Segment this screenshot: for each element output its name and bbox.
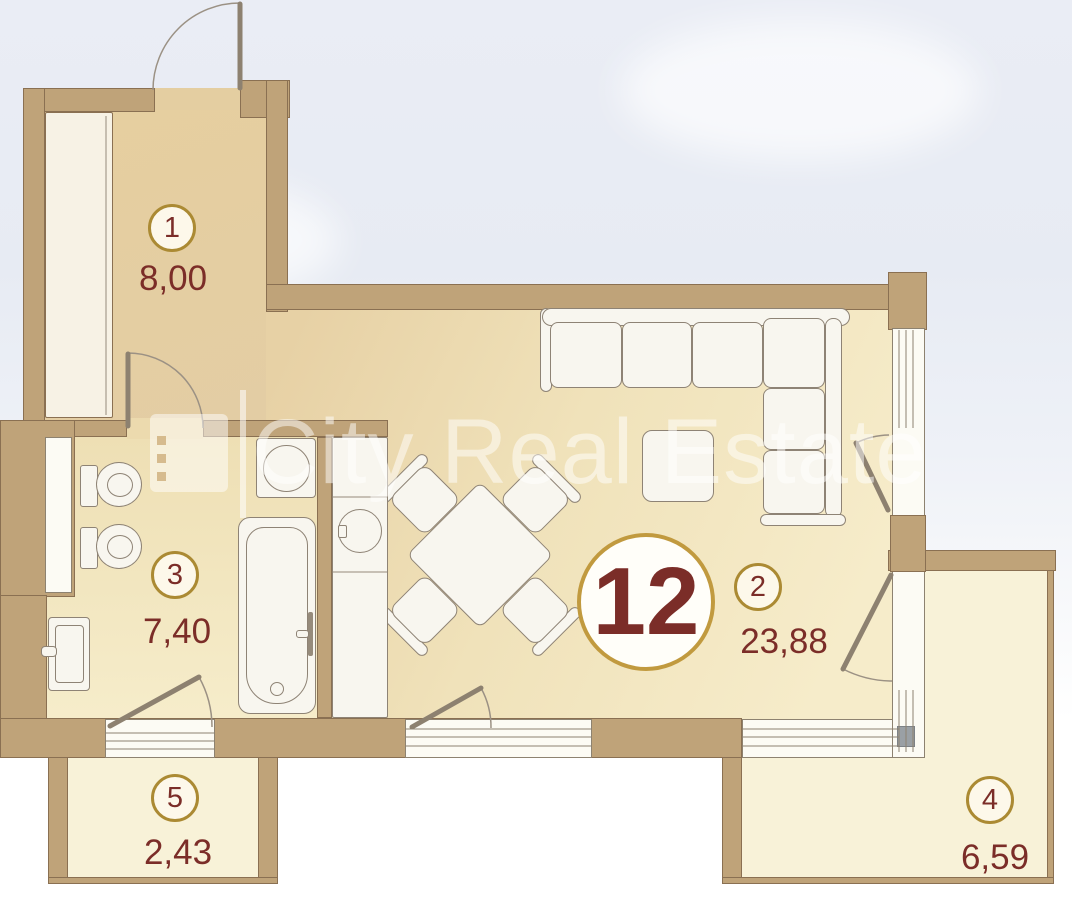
wall — [203, 420, 388, 437]
sofa-cushion — [622, 322, 692, 388]
balcony-4-floor — [925, 570, 1050, 760]
room-5-number: 5 — [167, 782, 183, 815]
toilet-bowl-inner — [107, 473, 133, 497]
coffee-table — [642, 430, 714, 502]
room-2-badge: 2 — [734, 563, 782, 611]
room-2-area: 23,88 — [709, 622, 859, 662]
room-2-number: 2 — [750, 571, 766, 604]
corner-window — [742, 719, 900, 758]
sofa-corner-cushion — [763, 318, 825, 388]
bathroom-doorway-floor — [127, 418, 203, 439]
wall — [890, 515, 926, 572]
bathtub-faucet-handle — [296, 630, 309, 638]
room-4-number: 4 — [982, 784, 998, 817]
room-1-area: 8,00 — [108, 259, 238, 299]
bathroom-sink-basin — [55, 625, 84, 683]
balcony-wall — [722, 757, 742, 881]
balcony-wall — [258, 757, 278, 881]
wall — [317, 437, 332, 718]
cloud-decoration — [620, 20, 980, 160]
balcony-wall — [48, 757, 68, 881]
room-4-badge: 4 — [966, 776, 1014, 824]
room-5-area: 2,43 — [113, 833, 243, 873]
bathtub-drain — [270, 682, 284, 696]
balcony-door-window — [105, 719, 215, 758]
room-3-badge: 3 — [151, 551, 199, 599]
floor-plan: 1 8,00 2 23,88 3 7,40 4 6,59 5 2,43 12 C… — [0, 0, 1072, 900]
sofa-armrest — [760, 514, 846, 526]
balcony-parapet — [722, 877, 1054, 884]
wardrobe — [45, 112, 113, 418]
balcony-door-window — [405, 719, 592, 758]
window — [45, 437, 72, 593]
wall — [23, 88, 45, 430]
sofa-cushion — [763, 450, 825, 514]
washing-machine-drum — [263, 445, 310, 492]
wall — [888, 272, 927, 330]
wall — [266, 284, 890, 310]
sofa-cushion — [692, 322, 763, 388]
wall — [0, 595, 47, 730]
balcony-parapet — [1047, 570, 1054, 881]
toilet-bowl-inner — [107, 535, 133, 559]
sofa-cushion — [763, 388, 825, 450]
apartment-number-badge: 12 — [577, 533, 715, 671]
kitchen-counter — [332, 437, 388, 718]
sofa-cushion — [550, 322, 622, 388]
corner-post — [897, 726, 915, 747]
room-1-badge: 1 — [148, 204, 196, 252]
wall — [266, 80, 288, 312]
faucet — [41, 646, 57, 657]
kitchen-faucet — [338, 525, 347, 538]
room-3-number: 3 — [167, 559, 183, 592]
room-3-area: 7,40 — [112, 612, 242, 652]
balcony-parapet — [48, 877, 278, 884]
room-4-area: 6,59 — [925, 838, 1065, 878]
room-1-number: 1 — [164, 212, 180, 245]
sofa-backrest — [825, 318, 842, 518]
bathtub-basin — [246, 527, 308, 704]
room-5-badge: 5 — [151, 774, 199, 822]
apartment-number: 12 — [593, 547, 700, 657]
